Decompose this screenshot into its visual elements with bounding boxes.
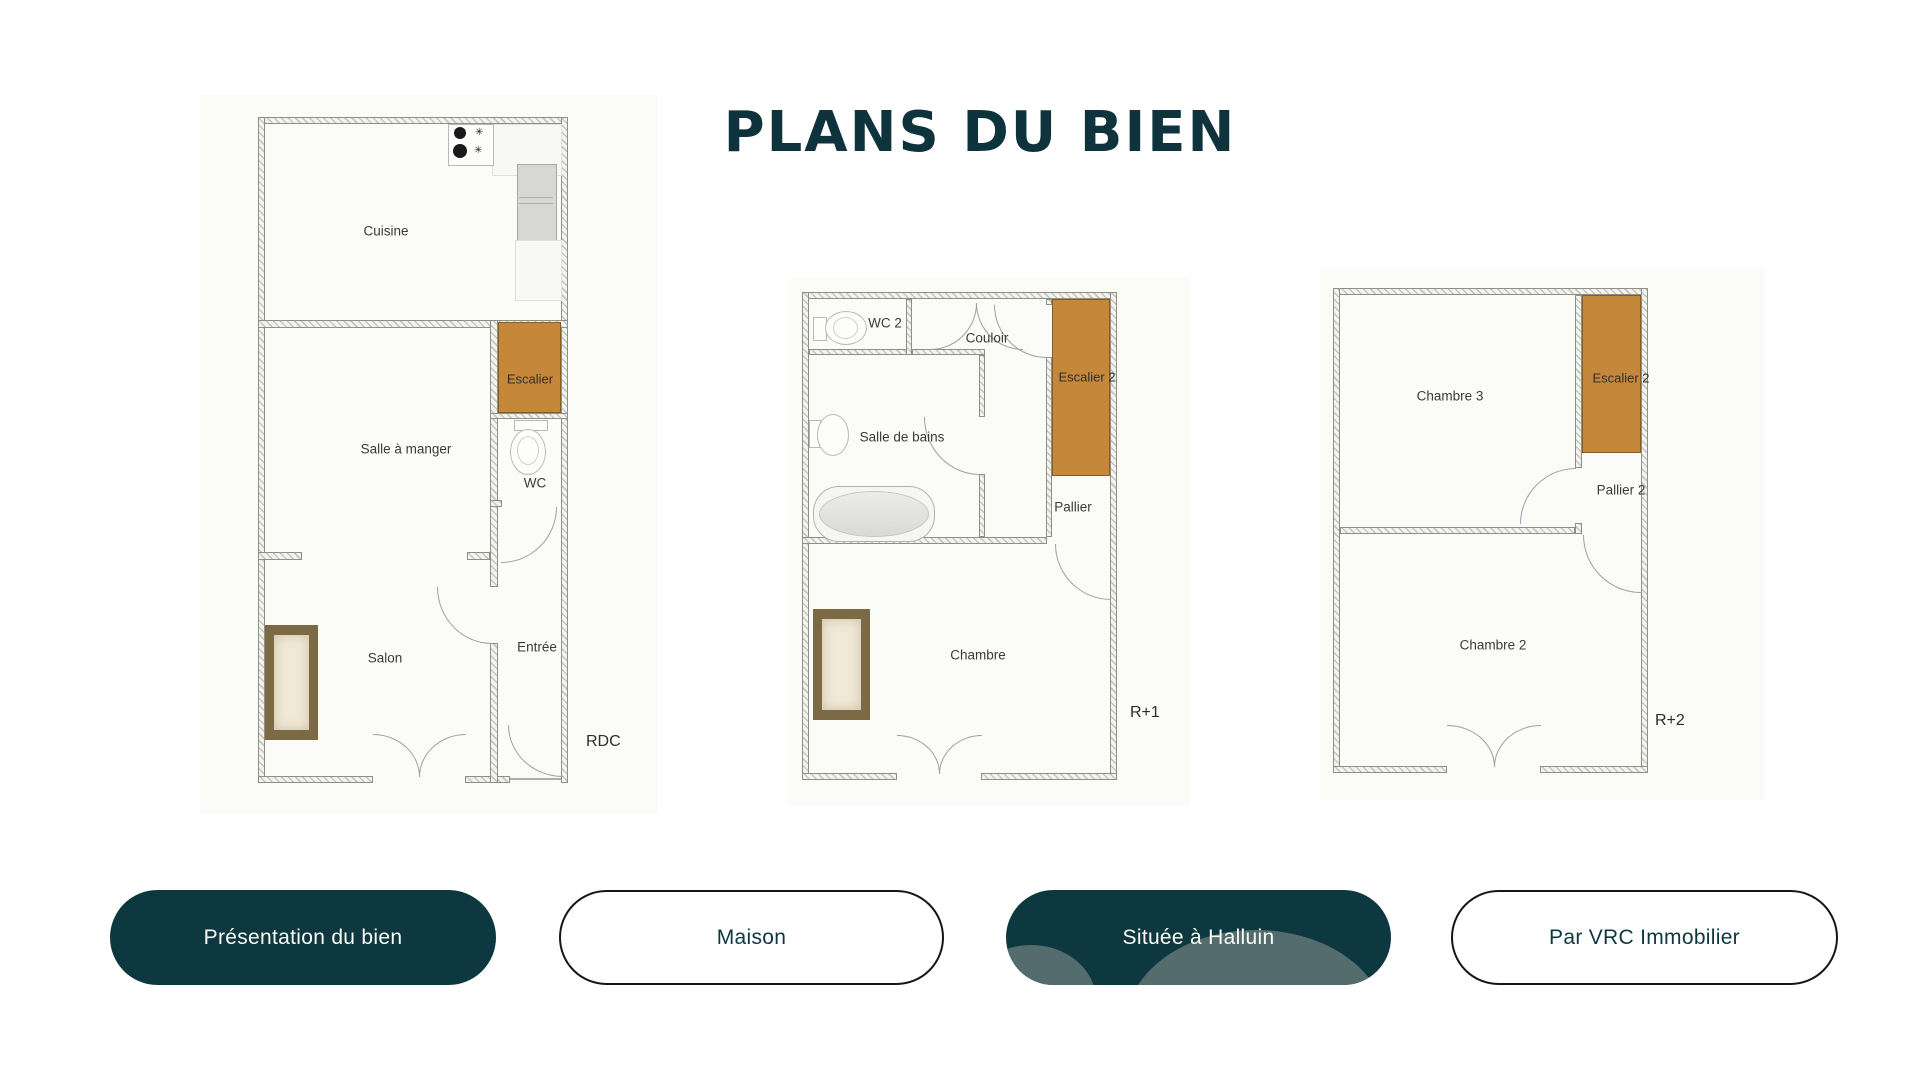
- stove-spark-icon: ✳: [475, 128, 483, 138]
- wall: [258, 552, 302, 560]
- wall: [1575, 523, 1582, 534]
- stove-burner-icon: [453, 144, 467, 158]
- floor-label-rdc: RDC: [586, 733, 621, 751]
- floor-label-r2: R+2: [1655, 712, 1685, 730]
- wall: [906, 299, 912, 355]
- french-door-arc: [1494, 725, 1541, 767]
- button-maison[interactable]: Maison: [559, 890, 944, 985]
- room-label-salon: Salon: [368, 651, 403, 666]
- wall: [467, 552, 490, 560]
- fridge-line: [519, 203, 553, 204]
- room-label-escalier2: Escalier 2: [1592, 371, 1649, 386]
- wall: [490, 643, 498, 783]
- room-label-escalier: Escalier: [507, 372, 553, 387]
- door-arc: [1583, 535, 1641, 593]
- decorative-blob: [1006, 945, 1096, 985]
- page-title: PLANS DU BIEN: [660, 100, 1300, 165]
- wall: [1540, 766, 1648, 773]
- wall: [979, 474, 985, 537]
- button-situee-a-halluin[interactable]: Située à Halluin: [1006, 890, 1391, 985]
- stove-spark-icon: ✳: [474, 146, 482, 156]
- french-door-arc: [939, 735, 982, 774]
- room-label-cuisine: Cuisine: [363, 224, 408, 239]
- french-door-arc: [1447, 725, 1495, 767]
- door-arc: [924, 417, 980, 475]
- fridge-line: [519, 197, 553, 198]
- stove-burner-icon: [454, 127, 466, 139]
- room-label-chambre2: Chambre 2: [1460, 638, 1527, 653]
- wall: [465, 776, 510, 783]
- door-arc: [1055, 544, 1111, 600]
- wall: [1333, 288, 1648, 295]
- stairs-block: [498, 322, 561, 413]
- floorplan-r1: WC 2 Couloir Escalier 2 Salle de bains P…: [802, 292, 1117, 780]
- wall: [981, 773, 1117, 780]
- floorplan-rdc: ✳ ✳ Cuisine Salle à manger Escalier WC S…: [258, 117, 568, 783]
- stairs-block: [1052, 299, 1110, 476]
- wall: [1333, 288, 1340, 773]
- room-label-couloir: Couloir: [966, 331, 1009, 346]
- wall: [561, 117, 568, 783]
- page: PLANS DU BIEN ✳ ✳: [0, 0, 1920, 1080]
- wall: [1340, 527, 1575, 534]
- room-label-salle-a-manger: Salle à manger: [361, 442, 452, 457]
- floor-label-r1: R+1: [1130, 704, 1160, 722]
- door-arc: [437, 587, 492, 644]
- button-par-vrc-immobilier[interactable]: Par VRC Immobilier: [1451, 890, 1838, 985]
- wall: [979, 355, 985, 417]
- room-label-entree: Entrée: [517, 640, 557, 655]
- floorplan-r2: Chambre 3 Escalier 2 Pallier 2 Chambre 2: [1333, 288, 1648, 773]
- door-arc: [501, 507, 557, 563]
- wall: [802, 773, 897, 780]
- room-label-pallier: Pallier: [1054, 500, 1092, 515]
- door-threshold: [510, 778, 561, 780]
- toilet-bowl: [833, 317, 858, 339]
- french-door-arc: [373, 734, 420, 777]
- room-label-salle-de-bains: Salle de bains: [860, 430, 945, 445]
- toilet-bowl: [517, 436, 539, 465]
- room-label-pallier2: Pallier 2: [1597, 483, 1646, 498]
- bed-mattress: [822, 619, 861, 710]
- wall: [258, 117, 568, 124]
- wall: [490, 320, 498, 587]
- wall: [490, 413, 568, 419]
- wall: [258, 776, 373, 783]
- button-label: Située à Halluin: [1123, 926, 1275, 950]
- wall: [1110, 292, 1117, 780]
- french-door-arc: [897, 735, 940, 774]
- wall: [490, 500, 502, 507]
- wall: [912, 349, 985, 355]
- wall: [802, 292, 1117, 299]
- door-arc: [1520, 468, 1576, 524]
- button-label: Présentation du bien: [204, 926, 403, 950]
- wall: [1641, 288, 1648, 773]
- kitchen-cabinet: [515, 240, 562, 301]
- sink-icon: [817, 414, 849, 456]
- wall: [258, 117, 265, 783]
- wall: [1333, 766, 1447, 773]
- button-presentation-du-bien[interactable]: Présentation du bien: [110, 890, 496, 985]
- room-label-escalier2: Escalier 2: [1058, 370, 1115, 385]
- french-door-arc: [419, 734, 466, 777]
- bathtub-basin: [819, 491, 929, 537]
- sofa-cushion: [274, 635, 309, 730]
- room-label-wc: WC: [524, 476, 547, 491]
- wall: [809, 349, 912, 355]
- wall: [802, 292, 809, 780]
- room-label-wc2: WC 2: [868, 316, 902, 331]
- room-label-chambre3: Chambre 3: [1417, 389, 1484, 404]
- wall: [1575, 295, 1582, 468]
- room-label-chambre: Chambre: [950, 648, 1006, 663]
- door-arc: [508, 725, 563, 777]
- button-label: Par VRC Immobilier: [1549, 926, 1740, 950]
- button-label: Maison: [717, 926, 787, 950]
